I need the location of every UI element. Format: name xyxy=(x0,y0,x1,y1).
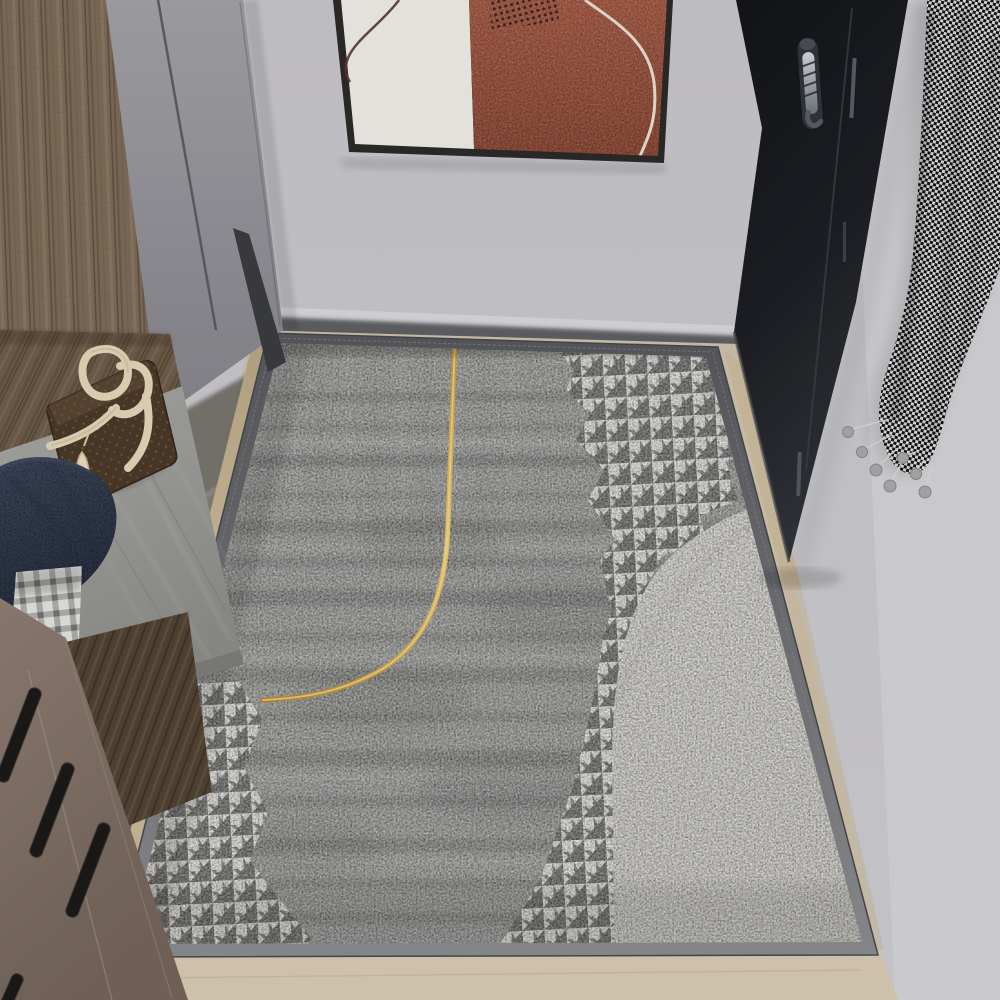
scene-canvas xyxy=(0,0,1000,1000)
photo-vignette xyxy=(0,0,1000,1000)
entryway-photo xyxy=(0,0,1000,1000)
